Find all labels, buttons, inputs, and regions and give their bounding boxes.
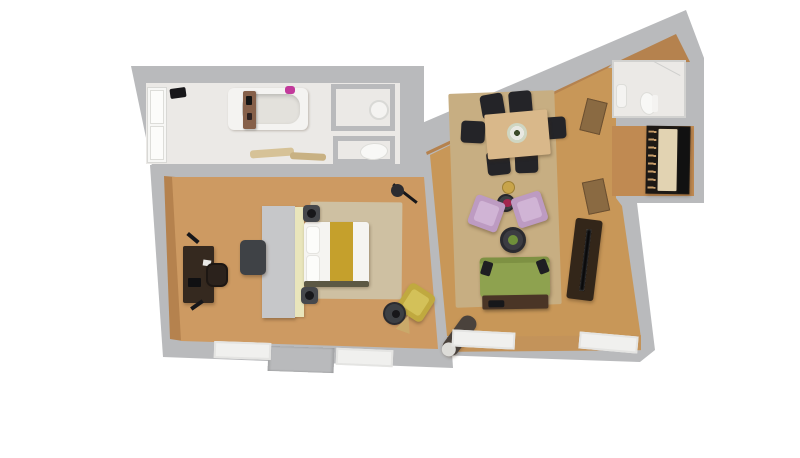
green-sofa bbox=[480, 256, 551, 311]
apartment-floor-plan bbox=[0, 0, 800, 458]
toilet-tank bbox=[652, 95, 658, 112]
table-lamp bbox=[305, 291, 314, 300]
bedroom-window-radiator bbox=[336, 348, 394, 367]
ottoman-bench bbox=[240, 240, 266, 275]
toilet-stall bbox=[333, 136, 395, 164]
vase bbox=[392, 310, 400, 318]
black-marble-panel bbox=[677, 127, 689, 193]
bed-runner bbox=[330, 222, 353, 286]
laptop bbox=[188, 278, 201, 287]
armchair-seat bbox=[473, 200, 500, 227]
tray-decor bbox=[488, 300, 504, 307]
closet-room-floor bbox=[612, 126, 694, 196]
flower-centerpiece bbox=[507, 123, 527, 143]
desk-chair bbox=[206, 263, 228, 287]
soap-item bbox=[246, 96, 252, 105]
shelf-items bbox=[647, 131, 656, 189]
nightstand bbox=[301, 287, 318, 304]
bathroom-double-door bbox=[147, 87, 167, 163]
shower-drain bbox=[369, 100, 389, 120]
nightstand bbox=[303, 205, 320, 222]
glass-screen bbox=[654, 61, 681, 76]
living-window-radiator bbox=[452, 329, 516, 349]
door-panel bbox=[150, 90, 164, 124]
wc-room-floor bbox=[612, 60, 686, 118]
bed-pillow bbox=[306, 226, 320, 254]
coffee-table bbox=[500, 227, 526, 253]
potted-plant bbox=[508, 235, 518, 245]
dark-wardrobe bbox=[645, 126, 690, 195]
soap-item bbox=[247, 113, 252, 120]
bed-pillow bbox=[306, 255, 320, 283]
brass-floor-lamp bbox=[502, 181, 515, 194]
bath-caddy bbox=[243, 91, 256, 129]
table-lamp bbox=[307, 209, 316, 218]
bed-foot-blanket bbox=[304, 281, 369, 287]
bathtub bbox=[228, 88, 308, 130]
pink-flowers bbox=[285, 86, 295, 94]
tv-screen bbox=[579, 229, 592, 291]
shower-stall bbox=[331, 84, 395, 131]
gray-wardrobe bbox=[262, 206, 295, 318]
bedroom-side-table bbox=[383, 302, 406, 325]
armchair-seat bbox=[402, 288, 430, 317]
toilet bbox=[359, 142, 388, 161]
door-panel bbox=[150, 126, 164, 160]
floor-lamp-shade bbox=[391, 184, 404, 197]
balcony-door-recess bbox=[268, 346, 335, 373]
dining-chair bbox=[460, 120, 485, 143]
wardrobe-cream-panel bbox=[657, 129, 677, 191]
armchair-seat bbox=[516, 196, 542, 222]
bedroom-window-radiator bbox=[214, 341, 272, 360]
wash-basin bbox=[616, 84, 627, 108]
